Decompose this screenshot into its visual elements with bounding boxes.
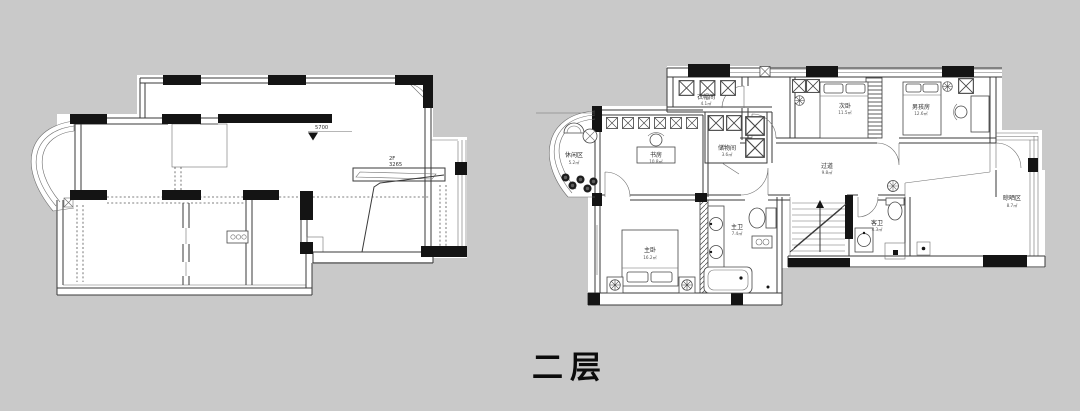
room-size-drying-area: 8.7㎡ — [1007, 202, 1019, 208]
room-label-bedroom2: 次卧 — [839, 102, 851, 110]
room-label-master-bed: 主卧 — [644, 246, 656, 254]
room-size-hallway: 9.8㎡ — [822, 169, 834, 175]
room-size-guest-bath: 4.3㎡ — [872, 226, 884, 232]
room-label-cloakroom: 衣帽间 — [697, 93, 715, 101]
room-size-cloakroom: 4.1㎡ — [701, 100, 713, 106]
stair-note-line2: 3265 — [389, 162, 402, 168]
room-label-hallway: 过道 — [821, 162, 833, 170]
room-label-master-bath: 主卫 — [731, 223, 743, 231]
bathtub-icon — [704, 267, 752, 293]
room-size-study: 10.8㎡ — [649, 158, 663, 164]
room-label-storage: 储物间 — [718, 144, 736, 152]
meter-box-icon — [227, 231, 248, 243]
divider-cabinet-icon — [866, 77, 882, 138]
room-label-guest-bath: 客卫 — [871, 219, 883, 227]
sink-icon — [855, 228, 873, 252]
room-label-leisure: 休闲区 — [565, 151, 583, 159]
left-plan: 5700 2F 3265 — [31, 75, 467, 295]
room-size-bedroom2: 11.5㎡ — [838, 109, 852, 115]
potted-plant-icon — [888, 181, 899, 192]
washer-icon — [752, 236, 772, 248]
room-size-boys-room: 12.6㎡ — [914, 110, 928, 116]
room-size-leisure: 5.2㎡ — [569, 159, 581, 165]
floorplan-canvas: 5700 2F 3265 — [0, 0, 1080, 411]
floor-title: 二层 — [455, 342, 685, 387]
table-icon — [583, 129, 597, 143]
room-label-boys-room: 男孩房 — [912, 103, 930, 111]
elevation-value: 5700 — [315, 125, 328, 131]
room-size-storage: 3.6㎡ — [722, 151, 734, 157]
room-label-drying-area: 晾晒区 — [1003, 194, 1021, 202]
right-plan: 休闲区 5.2㎡ 衣帽间 4.1㎡ 书房 10.8㎡ 储物间 3.6㎡ 次卧 1… — [536, 64, 1045, 305]
room-size-master-bath: 7.4㎡ — [732, 230, 744, 236]
room-size-master-bed: 16.2㎡ — [643, 254, 657, 260]
room-label-study: 书房 — [650, 151, 662, 159]
left-plan-floor — [31, 75, 467, 295]
toilet-icon — [749, 208, 776, 228]
drain-icon — [767, 286, 770, 289]
